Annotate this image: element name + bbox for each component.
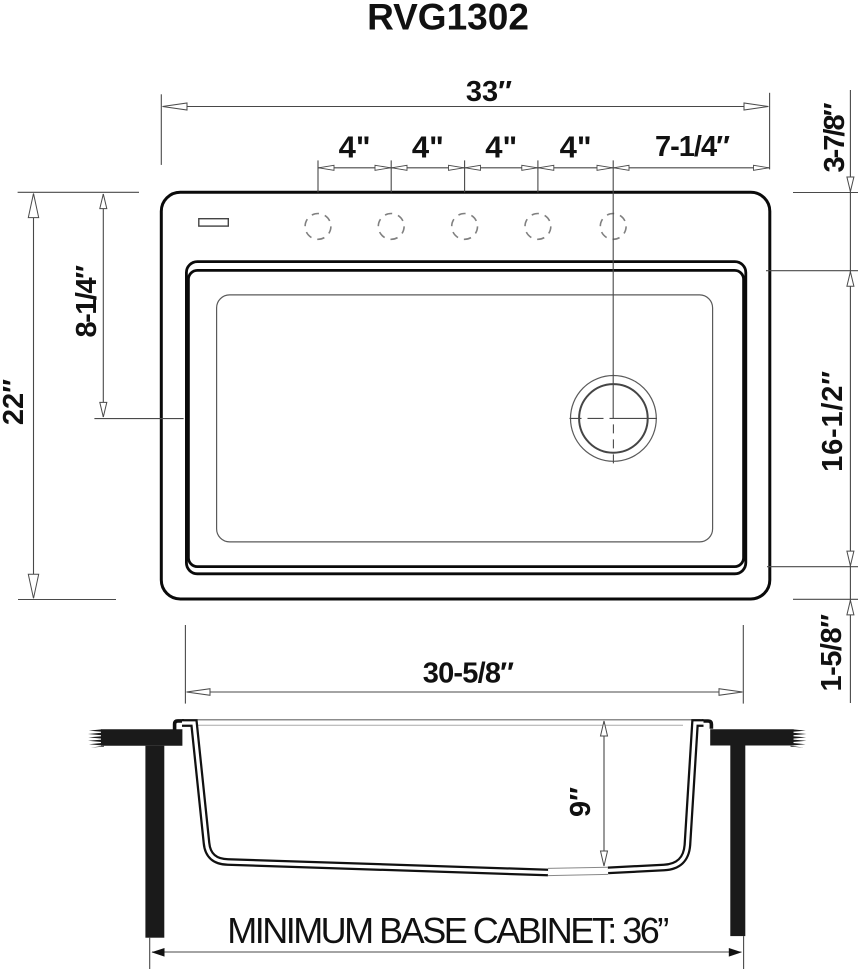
svg-text:4": 4" bbox=[412, 130, 444, 165]
svg-text:MINIMUM BASE CABINET: 36”: MINIMUM BASE CABINET: 36” bbox=[227, 910, 668, 951]
svg-text:33″: 33″ bbox=[466, 76, 512, 108]
svg-text:4": 4" bbox=[560, 130, 592, 165]
svg-text:1-5/8″: 1-5/8″ bbox=[816, 614, 848, 692]
svg-text:4": 4" bbox=[485, 130, 517, 165]
svg-text:RVG1302: RVG1302 bbox=[367, 0, 529, 38]
svg-text:4": 4" bbox=[339, 130, 371, 165]
svg-text:8-1/4″: 8-1/4″ bbox=[71, 265, 103, 338]
svg-text:22″: 22″ bbox=[0, 379, 30, 425]
svg-text:16-1/2″: 16-1/2″ bbox=[817, 370, 849, 472]
svg-text:3-7/8″: 3-7/8″ bbox=[819, 102, 851, 172]
svg-text:9″: 9″ bbox=[565, 787, 597, 817]
svg-text:7-1/4″: 7-1/4″ bbox=[655, 131, 730, 163]
svg-text:30-5/8″: 30-5/8″ bbox=[423, 658, 514, 690]
